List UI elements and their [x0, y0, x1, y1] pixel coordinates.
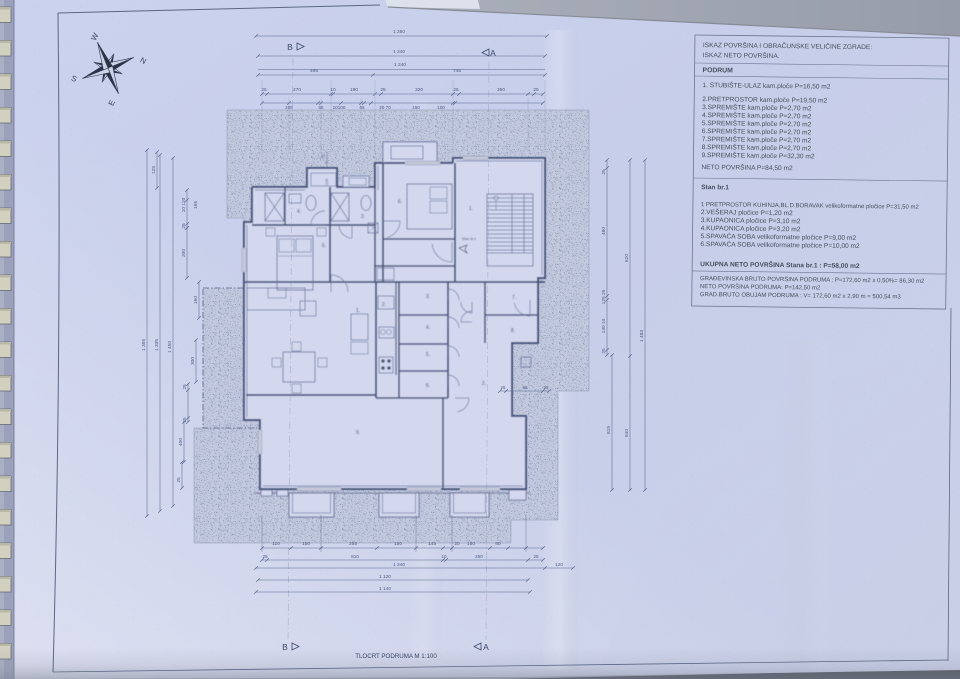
svg-text:1 240: 1 240	[393, 49, 405, 55]
svg-text:4.: 4.	[297, 209, 302, 215]
svg-text:25: 25	[453, 87, 459, 93]
svg-text:B: B	[282, 642, 288, 652]
svg-text:10: 10	[330, 87, 336, 93]
svg-text:815: 815	[606, 426, 612, 434]
svg-text:25: 25	[182, 384, 188, 390]
svg-text:120: 120	[555, 562, 563, 568]
svg-text:745: 745	[453, 68, 461, 74]
svg-text:250: 250	[475, 554, 483, 559]
svg-text:25: 25	[533, 87, 539, 93]
svg-text:2.: 2.	[482, 381, 487, 387]
svg-text:25: 25	[261, 87, 267, 93]
svg-text:1 140: 1 140	[379, 586, 391, 592]
svg-text:110: 110	[272, 541, 280, 547]
svg-text:10: 10	[441, 554, 447, 559]
svg-text:25: 25	[182, 417, 188, 423]
svg-text:1 120: 1 120	[379, 574, 391, 580]
svg-text:3.KUPAONICA pločice P=3,10 m: 3.KUPAONICA pločice P=3,10 m2	[701, 217, 801, 225]
svg-text:125 25: 125 25	[601, 289, 607, 304]
svg-text:25: 25	[380, 87, 386, 93]
svg-text:25: 25	[501, 385, 506, 390]
svg-text:100: 100	[437, 105, 445, 110]
svg-text:25: 25	[181, 223, 187, 229]
svg-text:65: 65	[359, 105, 365, 110]
svg-text:350: 350	[497, 87, 505, 93]
svg-text:640: 640	[624, 429, 630, 437]
svg-text:255: 255	[349, 541, 357, 547]
svg-text:190: 190	[350, 87, 358, 93]
svg-text:1 355: 1 355	[141, 339, 147, 351]
svg-text:130 10: 130 10	[601, 318, 607, 333]
svg-text:B: B	[287, 42, 293, 52]
svg-text:495: 495	[310, 68, 318, 74]
svg-text:9.: 9.	[356, 430, 361, 436]
svg-text:A: A	[490, 48, 496, 58]
svg-text:1.: 1.	[469, 206, 474, 212]
svg-text:25: 25	[601, 169, 607, 175]
svg-text:200: 200	[181, 249, 187, 257]
svg-text:320: 320	[415, 87, 423, 93]
svg-text:160: 160	[193, 296, 199, 304]
svg-text:1 240: 1 240	[394, 62, 406, 68]
svg-text:150: 150	[467, 541, 475, 547]
svg-text:125: 125	[151, 166, 157, 174]
svg-text:1 450: 1 450	[167, 341, 173, 353]
svg-text:6.: 6.	[426, 383, 431, 389]
svg-text:Stan br.1: Stan br.1	[701, 184, 729, 191]
svg-text:25: 25	[262, 554, 268, 559]
svg-text:150: 150	[412, 105, 420, 110]
svg-text:205: 205	[285, 105, 293, 110]
svg-text:Stan br.1: Stan br.1	[462, 237, 476, 241]
svg-text:100: 100	[324, 178, 329, 185]
svg-text:150: 150	[302, 541, 310, 547]
svg-text:25: 25	[533, 554, 539, 559]
svg-text:480: 480	[601, 227, 607, 235]
svg-text:620: 620	[624, 254, 630, 262]
svg-text:10100: 10100	[333, 105, 346, 110]
svg-text:60: 60	[495, 541, 501, 547]
svg-text:6.: 6.	[398, 199, 403, 205]
svg-text:25: 25	[176, 477, 182, 483]
svg-text:1 335: 1 335	[154, 339, 160, 351]
svg-text:300: 300	[190, 357, 196, 365]
svg-text:3.: 3.	[426, 294, 431, 300]
svg-text:25: 25	[601, 348, 607, 354]
svg-text:10 120: 10 120	[181, 197, 187, 212]
svg-text:4.: 4.	[426, 325, 431, 331]
svg-text:8.: 8.	[511, 328, 516, 334]
svg-text:400: 400	[178, 438, 184, 446]
svg-text:150: 150	[394, 541, 402, 547]
svg-text:3.: 3.	[361, 214, 366, 220]
svg-text:1 483: 1 483	[639, 330, 645, 342]
svg-text:20 70: 20 70	[379, 105, 391, 110]
svg-text:4.KUPAONICA pločice P=3,20 m2: 4.KUPAONICA pločice P=3,20 m2	[701, 225, 801, 233]
svg-text:95: 95	[523, 385, 528, 390]
svg-text:270: 270	[293, 87, 301, 93]
svg-text:25: 25	[544, 385, 549, 390]
svg-text:810: 810	[351, 554, 359, 559]
svg-text:1 240: 1 240	[393, 562, 405, 568]
svg-text:65: 65	[318, 105, 324, 110]
svg-text:155: 155	[193, 201, 199, 209]
svg-text:5.: 5.	[322, 243, 327, 249]
svg-text:2.: 2.	[382, 302, 387, 308]
svg-text:PODRUM: PODRUM	[703, 67, 734, 74]
svg-text:5.: 5.	[426, 352, 431, 358]
svg-text:20: 20	[454, 541, 460, 547]
svg-text:145: 145	[428, 541, 436, 547]
svg-text:A: A	[483, 642, 489, 652]
svg-text:7.: 7.	[512, 295, 517, 301]
svg-text:TLOCRT PODRUMA M 1:100: TLOCRT PODRUMA M 1:100	[355, 653, 437, 660]
svg-text:1 260: 1 260	[393, 29, 405, 35]
svg-text:1.: 1.	[356, 308, 361, 314]
